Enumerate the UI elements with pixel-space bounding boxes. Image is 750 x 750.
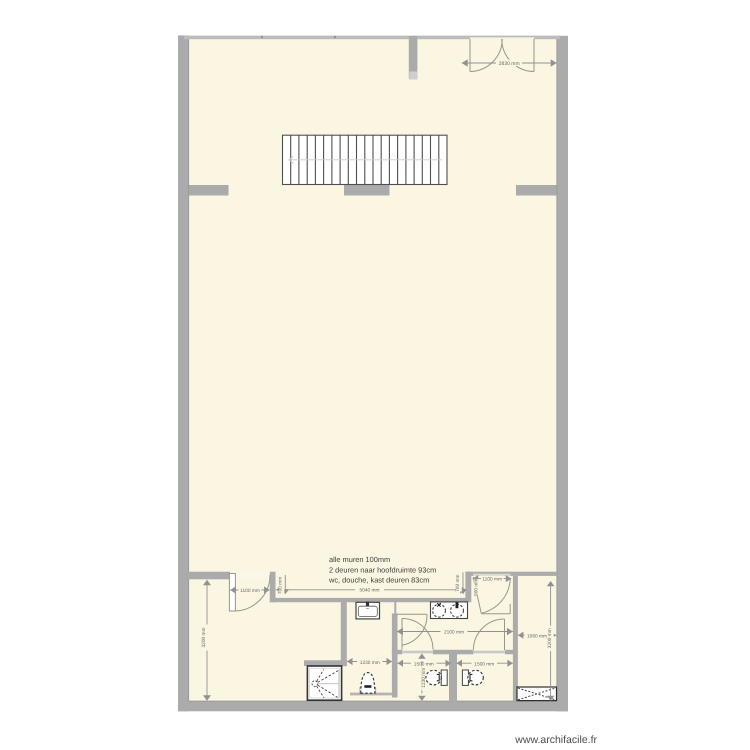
- svg-text:900 mm: 900 mm: [473, 579, 479, 596]
- svg-text:2830 mm: 2830 mm: [499, 61, 520, 67]
- svg-text:700 mm: 700 mm: [278, 577, 284, 594]
- svg-text:2 deuren naar hoofdruimte 93cm: 2 deuren naar hoofdruimte 93cm: [329, 566, 436, 575]
- svg-text:alle muren 100mm: alle muren 100mm: [329, 555, 390, 564]
- svg-text:1100 mm: 1100 mm: [482, 577, 502, 583]
- svg-text:www.archifacile.fr: www.archifacile.fr: [514, 734, 597, 746]
- svg-text:1100 mm: 1100 mm: [240, 588, 260, 594]
- svg-text:1230 mm: 1230 mm: [360, 660, 380, 666]
- svg-text:wc, douche, kast deuren 83cm: wc, douche, kast deuren 83cm: [328, 576, 429, 585]
- svg-text:3200 mm: 3200 mm: [201, 628, 207, 648]
- svg-text:3200 mm: 3200 mm: [547, 628, 553, 648]
- svg-text:1060 mm: 1060 mm: [527, 633, 547, 639]
- svg-text:700 mm: 700 mm: [455, 575, 461, 592]
- svg-text:2100 mm: 2100 mm: [444, 630, 464, 636]
- svg-text:1500 mm: 1500 mm: [474, 661, 494, 667]
- svg-text:5040 mm: 5040 mm: [360, 588, 380, 594]
